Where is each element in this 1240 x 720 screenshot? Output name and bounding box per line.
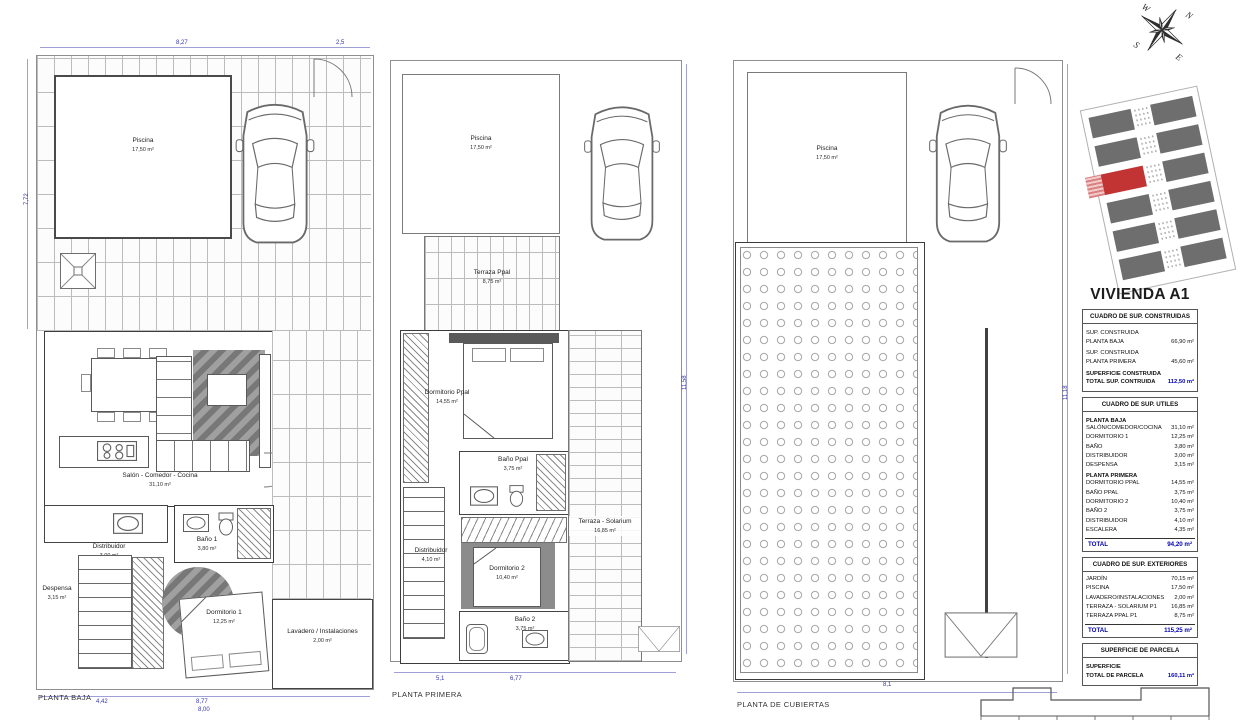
sink-icon [183, 514, 209, 532]
chair [97, 412, 115, 422]
room-label-salon: Salón - Comedor - Cocina 31,10 m² [85, 470, 235, 490]
row-value: 3,80 m² [1174, 443, 1194, 452]
row-value: 3,15 m² [1174, 461, 1194, 470]
room-area: 12,25 m² [178, 618, 270, 627]
row-label: BAÑO [1086, 443, 1102, 452]
room-label-distribuidor: Distribuidor 4,10 m² [403, 545, 459, 565]
highlighted-unit [1101, 166, 1147, 195]
site-location-plan [1086, 90, 1236, 290]
coffee-table [207, 374, 247, 406]
dimension-text: 11,18 [1063, 385, 1069, 400]
dimension-text: 7,72 [24, 193, 30, 205]
chair [123, 348, 141, 358]
row-label: BAÑO PPAL [1086, 489, 1118, 498]
total-label: TOTAL [1088, 627, 1108, 634]
section-header: CUADRO DE SUP. CONSTRUIDAS [1082, 309, 1198, 324]
room-name: Despensa [36, 583, 78, 594]
group-header: PLANTA PRIMERA [1083, 470, 1197, 479]
wardrobe [403, 333, 429, 483]
sofa [156, 440, 250, 472]
room-name: Distribuidor [403, 545, 459, 556]
plan-title: PLANTA BAJA [38, 693, 91, 702]
row-label: PLANTA PRIMERA [1086, 358, 1139, 367]
page-title: VIVIENDA A1 [1080, 286, 1200, 304]
row-label: SUP. CONSTRUIDA [1086, 349, 1139, 358]
terraza-ppal-tiles: Terraza Ppal 8,75 m² [424, 236, 560, 332]
side-yard-tiles [272, 331, 371, 599]
room-label-solarium: Terraza - Solarium 16,85 m² [569, 516, 641, 536]
dimension-text: 11,58 [682, 375, 688, 390]
room-name: Terraza Ppal [425, 267, 559, 278]
dimension-text: 8,1 [883, 682, 891, 688]
room-name: Dormitorio 2 [457, 563, 557, 574]
row-label: TOTAL SUP. CONTRUIDA [1086, 378, 1161, 387]
row-value: 112,50 m² [1168, 378, 1194, 387]
table-section-exteriores: CUADRO DE SUP. EXTERIORES JARDÍN70,15 m²… [1082, 557, 1198, 638]
row-value: 16,85 m² [1171, 603, 1194, 612]
table-row: DORMITORIO PPAL14,55 m² [1083, 479, 1197, 488]
row-value: 45,60 m² [1171, 358, 1194, 367]
row-label: JARDÍN [1086, 575, 1107, 584]
row-value: 3,75 m² [1174, 507, 1194, 516]
room-name: Terraza - Solarium [569, 516, 641, 527]
building-block [1174, 209, 1220, 238]
table-row: TERRAZA PPAL P18,75 m² [1083, 612, 1197, 621]
compass-e-label: E [1173, 51, 1184, 63]
roof-slope-icon [638, 620, 680, 658]
row-value: 14,55 m² [1171, 479, 1194, 488]
chair [123, 412, 141, 422]
table-row: DISTRIBUIDOR3,00 m² [1083, 452, 1197, 461]
compass-s-label: S [1132, 39, 1142, 50]
table-row: DISTRIBUIDOR4,10 m² [1083, 517, 1197, 526]
room-name: Dormitorio Ppal [405, 387, 489, 398]
table-row: DORMITORIO 112,25 m² [1083, 433, 1197, 442]
sink-icon [113, 513, 143, 534]
solarium-tiles: Terraza - Solarium 16,85 m² [568, 330, 642, 662]
row-value: 17,50 m² [1171, 584, 1194, 593]
table-row: DESPENSA3,15 m² [1083, 461, 1197, 470]
row-label: SUPERFICIE CONSTRUIDA [1086, 370, 1161, 379]
building-block [1113, 222, 1159, 251]
gravel-roof-hatch [740, 247, 918, 673]
plan-planta-cubiertas: Piscina 17,50 m² 8,1 11,18 PLANTA DE CUB… [733, 60, 1067, 710]
row-label: DORMITORIO 2 [1086, 498, 1128, 507]
row-label: DORMITORIO 1 [1086, 433, 1128, 442]
room-area: 3,15 m² [36, 594, 78, 603]
building-block [1088, 109, 1134, 138]
door-arc-icon [312, 57, 354, 99]
section-header: SUPERFICIE DE PARCELA [1082, 643, 1198, 658]
row-label: PISCINA [1086, 584, 1109, 593]
table-row: TERRAZA - SOLARIUM P116,85 m² [1083, 603, 1197, 612]
row-value: 8,75 m² [1174, 612, 1194, 621]
wardrobe [461, 517, 567, 543]
total-label: TOTAL [1088, 541, 1108, 548]
building-block [1156, 124, 1202, 153]
group-header: PLANTA BAJA [1083, 415, 1197, 424]
pool: Piscina 17,50 m² [402, 74, 560, 234]
table-row: DORMITORIO 210,40 m² [1083, 498, 1197, 507]
drain-cross-icon [61, 254, 95, 288]
bathtub-icon [466, 624, 488, 654]
path-gravel [1139, 134, 1159, 158]
row-value: 4,10 m² [1174, 517, 1194, 526]
room-name: Lavadero / Instalaciones [273, 626, 372, 637]
table-row: BAÑO PPAL3,75 m² [1083, 489, 1197, 498]
room-area: 31,10 m² [85, 481, 235, 490]
staircase [78, 555, 132, 669]
shower [237, 508, 271, 559]
table-section-utiles: CUADRO DE SUP. UTILES PLANTA BAJA SALÓN/… [1082, 397, 1198, 552]
table-row: JARDÍN70,15 m² [1083, 575, 1197, 584]
table-row-total: SUPERFICIE CONSTRUIDATOTAL SUP. CONTRUID… [1083, 368, 1197, 388]
section-header: CUADRO DE SUP. UTILES [1082, 397, 1198, 412]
row-label: DESPENSA [1086, 461, 1118, 470]
room-name: Baño 1 [177, 534, 237, 545]
section-header: CUADRO DE SUP. EXTERIORES [1082, 557, 1198, 572]
row-label: DISTRIBUIDOR [1086, 517, 1128, 526]
row-label: PLANTA BAJA [1086, 338, 1139, 347]
building-block [1150, 96, 1196, 125]
plan-planta-baja: Piscina 17,50 m² [36, 55, 380, 715]
room-bano-ppal: Baño Ppal 3,75 m² [459, 451, 569, 515]
room-name: Distribuidor [64, 541, 154, 552]
row-label: BAÑO 2 [1086, 507, 1107, 516]
room-label-dormitorio1: Dormitorio 1 12,25 m² [178, 607, 270, 627]
room-name: Dormitorio 1 [178, 607, 270, 618]
row-label: LAVADERO/INSTALACIONES [1086, 594, 1164, 603]
row-label: SALÓN/COMEDOR/COCINA [1086, 424, 1162, 433]
table-row: PISCINA17,50 m² [1083, 584, 1197, 593]
row-value: 70,15 m² [1171, 575, 1194, 584]
dimension-line [1067, 64, 1068, 674]
room-salon: Salón - Comedor - Cocina 31,10 m² [44, 331, 274, 507]
path-gravel [1163, 247, 1183, 271]
room-area: 17,50 m² [56, 146, 230, 155]
room-area: 14,55 m² [405, 398, 489, 407]
highlighted-parcel [1085, 175, 1105, 199]
pillow [229, 651, 262, 668]
table-row: LAVADERO/INSTALACIONES2,00 m² [1083, 594, 1197, 603]
building-block [1168, 181, 1214, 210]
room-area: 10,40 m² [457, 574, 557, 583]
path-gravel [1133, 105, 1153, 129]
path-gravel [1145, 162, 1165, 186]
shower [536, 454, 566, 511]
room-label-piscina: Piscina 17,50 m² [748, 143, 906, 163]
plan-title: PLANTA DE CUBIERTAS [737, 700, 830, 709]
plan-title: PLANTA PRIMERA [392, 690, 462, 699]
bed [179, 591, 270, 678]
path-gravel [1157, 219, 1177, 243]
dimension-text: 8,00 [198, 707, 210, 713]
table-row: BAÑO3,80 m² [1083, 443, 1197, 452]
toilet-icon [508, 484, 525, 508]
table-row: SUP. CONSTRUIDAPLANTA BAJA 66,90 m² [1083, 327, 1197, 347]
headboard-wall [449, 333, 559, 343]
car-icon [234, 91, 316, 249]
building-block [1119, 251, 1165, 280]
dimension-text: 8,77 [196, 699, 208, 705]
dimension-line [394, 672, 676, 673]
room-name: Piscina [748, 143, 906, 154]
row-label: TERRAZA - SOLARIUM P1 [1086, 603, 1157, 612]
cooktop-icon [97, 441, 137, 461]
surface-summary-table: CUADRO DE SUP. CONSTRUIDAS SUP. CONSTRUI… [1082, 309, 1198, 691]
dimension-line [40, 47, 370, 48]
row-value: 4,35 m² [1174, 526, 1194, 535]
room-label-piscina: Piscina 17,50 m² [56, 135, 230, 155]
table-row: SUP. CONSTRUIDAPLANTA PRIMERA 45,60 m² [1083, 347, 1197, 367]
row-value: 12,25 m² [1171, 433, 1194, 442]
row-label: TERRAZA PPAL P1 [1086, 612, 1137, 621]
room-area: 8,75 m² [425, 278, 559, 287]
pool: Piscina 17,50 m² [747, 72, 907, 250]
building-block [1095, 137, 1141, 166]
room-label-lavadero: Lavadero / Instalaciones 2,00 m² [273, 626, 372, 646]
row-label: ESCALERA [1086, 526, 1117, 535]
table-row: ESCALERA4,35 m² [1083, 526, 1197, 535]
room-name: Salón - Comedor - Cocina [85, 470, 235, 481]
row-value: 3,75 m² [1174, 489, 1194, 498]
room-area: 16,85 m² [569, 527, 641, 536]
room-area: 3,75 m² [490, 625, 560, 634]
dimension-text: 4,42 [96, 699, 108, 705]
building-block [1107, 194, 1153, 223]
car-icon [929, 92, 1007, 248]
toilet-icon [217, 512, 235, 536]
site-outline [1080, 86, 1236, 295]
row-label: SUPERFICIE [1086, 663, 1144, 672]
pool: Piscina 17,50 m² [54, 75, 232, 239]
table-row: SALÓN/COMEDOR/COCINA31,10 m² [1083, 424, 1197, 433]
room-area: 3,80 m² [177, 545, 237, 554]
sink-icon [470, 486, 498, 506]
row-label: SUP. CONSTRUIDA [1086, 329, 1139, 338]
dimension-line [686, 64, 687, 654]
dimension-text: 5,1 [436, 676, 444, 682]
row-value: 66,90 m² [1171, 338, 1194, 347]
parapet-elevation-icon [973, 678, 1238, 720]
compass-w-label: W [1140, 1, 1153, 14]
room-name: Piscina [403, 133, 559, 144]
room-label-dorm-ppal: Dormitorio Ppal 14,55 m² [405, 387, 489, 407]
room-lavadero: Lavadero / Instalaciones 2,00 m² [272, 599, 373, 689]
plan-planta-primera: Piscina 17,50 m² Terraza Ppal 8,75 m² Do… [390, 60, 686, 710]
room-area: 4,10 m² [403, 556, 459, 565]
car-icon [584, 94, 660, 246]
dimension-text: 8,27 [176, 40, 188, 46]
compass-n-label: N [1183, 9, 1195, 22]
room-label-terraza-ppal: Terraza Ppal 8,75 m² [425, 267, 559, 287]
room-name: Baño 2 [490, 614, 560, 625]
pillow [472, 348, 506, 362]
table-row-total: TOTAL94,20 m² [1085, 538, 1195, 548]
row-value: 31,10 m² [1171, 424, 1194, 433]
pillow [191, 654, 224, 671]
room-area: 17,50 m² [748, 154, 906, 163]
room-label-despensa: Despensa 3,15 m² [36, 583, 78, 603]
room-name: Piscina [56, 135, 230, 146]
roof-slope-icon [943, 612, 1019, 658]
row-value: 3,00 m² [1174, 452, 1194, 461]
pillow [510, 348, 544, 362]
table-row-total: TOTAL115,25 m² [1085, 624, 1195, 634]
row-label: DISTRIBUIDOR [1086, 452, 1128, 461]
room-bano2: Baño 2 3,75 m² [459, 611, 569, 661]
room-label-piscina: Piscina 17,50 m² [403, 133, 559, 153]
room-bano1: Baño 1 3,80 m² [174, 505, 274, 563]
wardrobe [132, 557, 164, 669]
row-label: DORMITORIO PPAL [1086, 479, 1140, 488]
dimension-text: 6,77 [510, 676, 522, 682]
chair [97, 348, 115, 358]
total-value: 115,25 m² [1164, 627, 1192, 634]
table-row: BAÑO 23,75 m² [1083, 507, 1197, 516]
architectural-sheet: Piscina 17,50 m² [0, 0, 1240, 720]
building-block [1180, 238, 1226, 267]
row-value: 2,00 m² [1174, 594, 1194, 603]
room-label-dormitorio2: Dormitorio 2 10,40 m² [457, 563, 557, 583]
door-arc-icon [1013, 66, 1053, 106]
table-section-construidas: CUADRO DE SUP. CONSTRUIDAS SUP. CONSTRUI… [1082, 309, 1198, 392]
building-block [1162, 153, 1208, 182]
flat-roof [735, 242, 925, 680]
total-value: 94,20 m² [1167, 541, 1192, 548]
row-value: 10,40 m² [1171, 498, 1194, 507]
interior: Dormitorio Ppal 14,55 m² Baño Ppal 3,75 … [400, 330, 570, 664]
compass-rose-icon: N S E W [1123, 0, 1197, 64]
room-label-bano2: Baño 2 3,75 m² [490, 614, 560, 634]
room-label-bano1: Baño 1 3,80 m² [177, 534, 237, 554]
dimension-text: 2,5 [336, 40, 344, 46]
room-area: 2,00 m² [273, 637, 372, 646]
path-gravel [1151, 190, 1171, 214]
room-area: 17,50 m² [403, 144, 559, 153]
wall [985, 328, 988, 658]
pool-drain [60, 253, 96, 289]
kitchen-counter [44, 505, 168, 543]
chair [81, 374, 91, 392]
